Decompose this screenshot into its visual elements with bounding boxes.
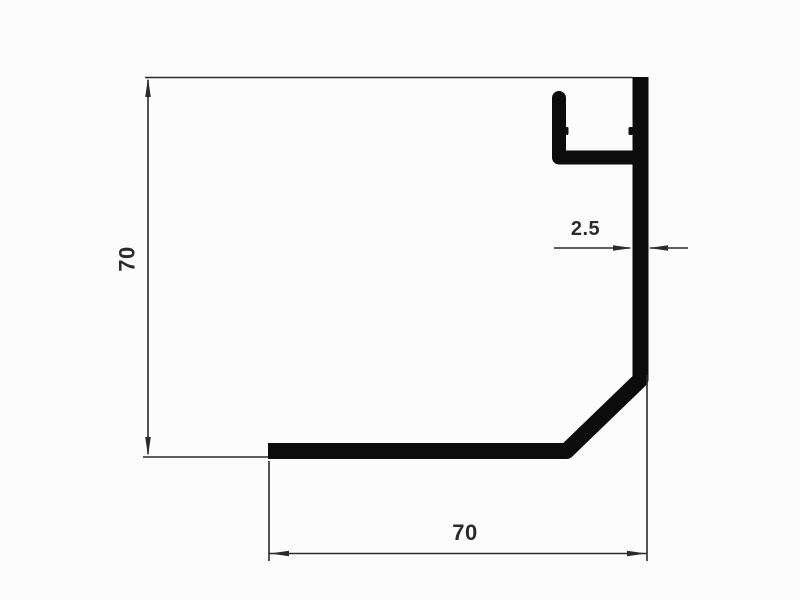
width-arrow-left (270, 551, 289, 557)
thickness-arrow-right (613, 245, 632, 251)
thickness-dimension-label: 2.5 (571, 218, 600, 240)
width-dimension: 70 (269, 375, 647, 561)
profile-body-outline (268, 77, 641, 451)
height-arrow-down (145, 437, 151, 456)
height-dimension-label: 70 (115, 246, 140, 271)
channel-nub-left (564, 127, 569, 135)
channel-nub-right (629, 127, 634, 135)
profile-cross-section-drawing: 70 70 2.5 (0, 0, 800, 600)
profile-geometry (268, 77, 641, 451)
height-arrow-up (145, 78, 151, 97)
width-dimension-label: 70 (452, 520, 477, 545)
width-arrow-right (627, 551, 646, 557)
thickness-arrow-left (649, 245, 668, 251)
technical-drawing-canvas: 70 70 2.5 (0, 0, 800, 600)
profile-mounting-channel (559, 98, 640, 158)
thickness-dimension: 2.5 (554, 218, 688, 251)
